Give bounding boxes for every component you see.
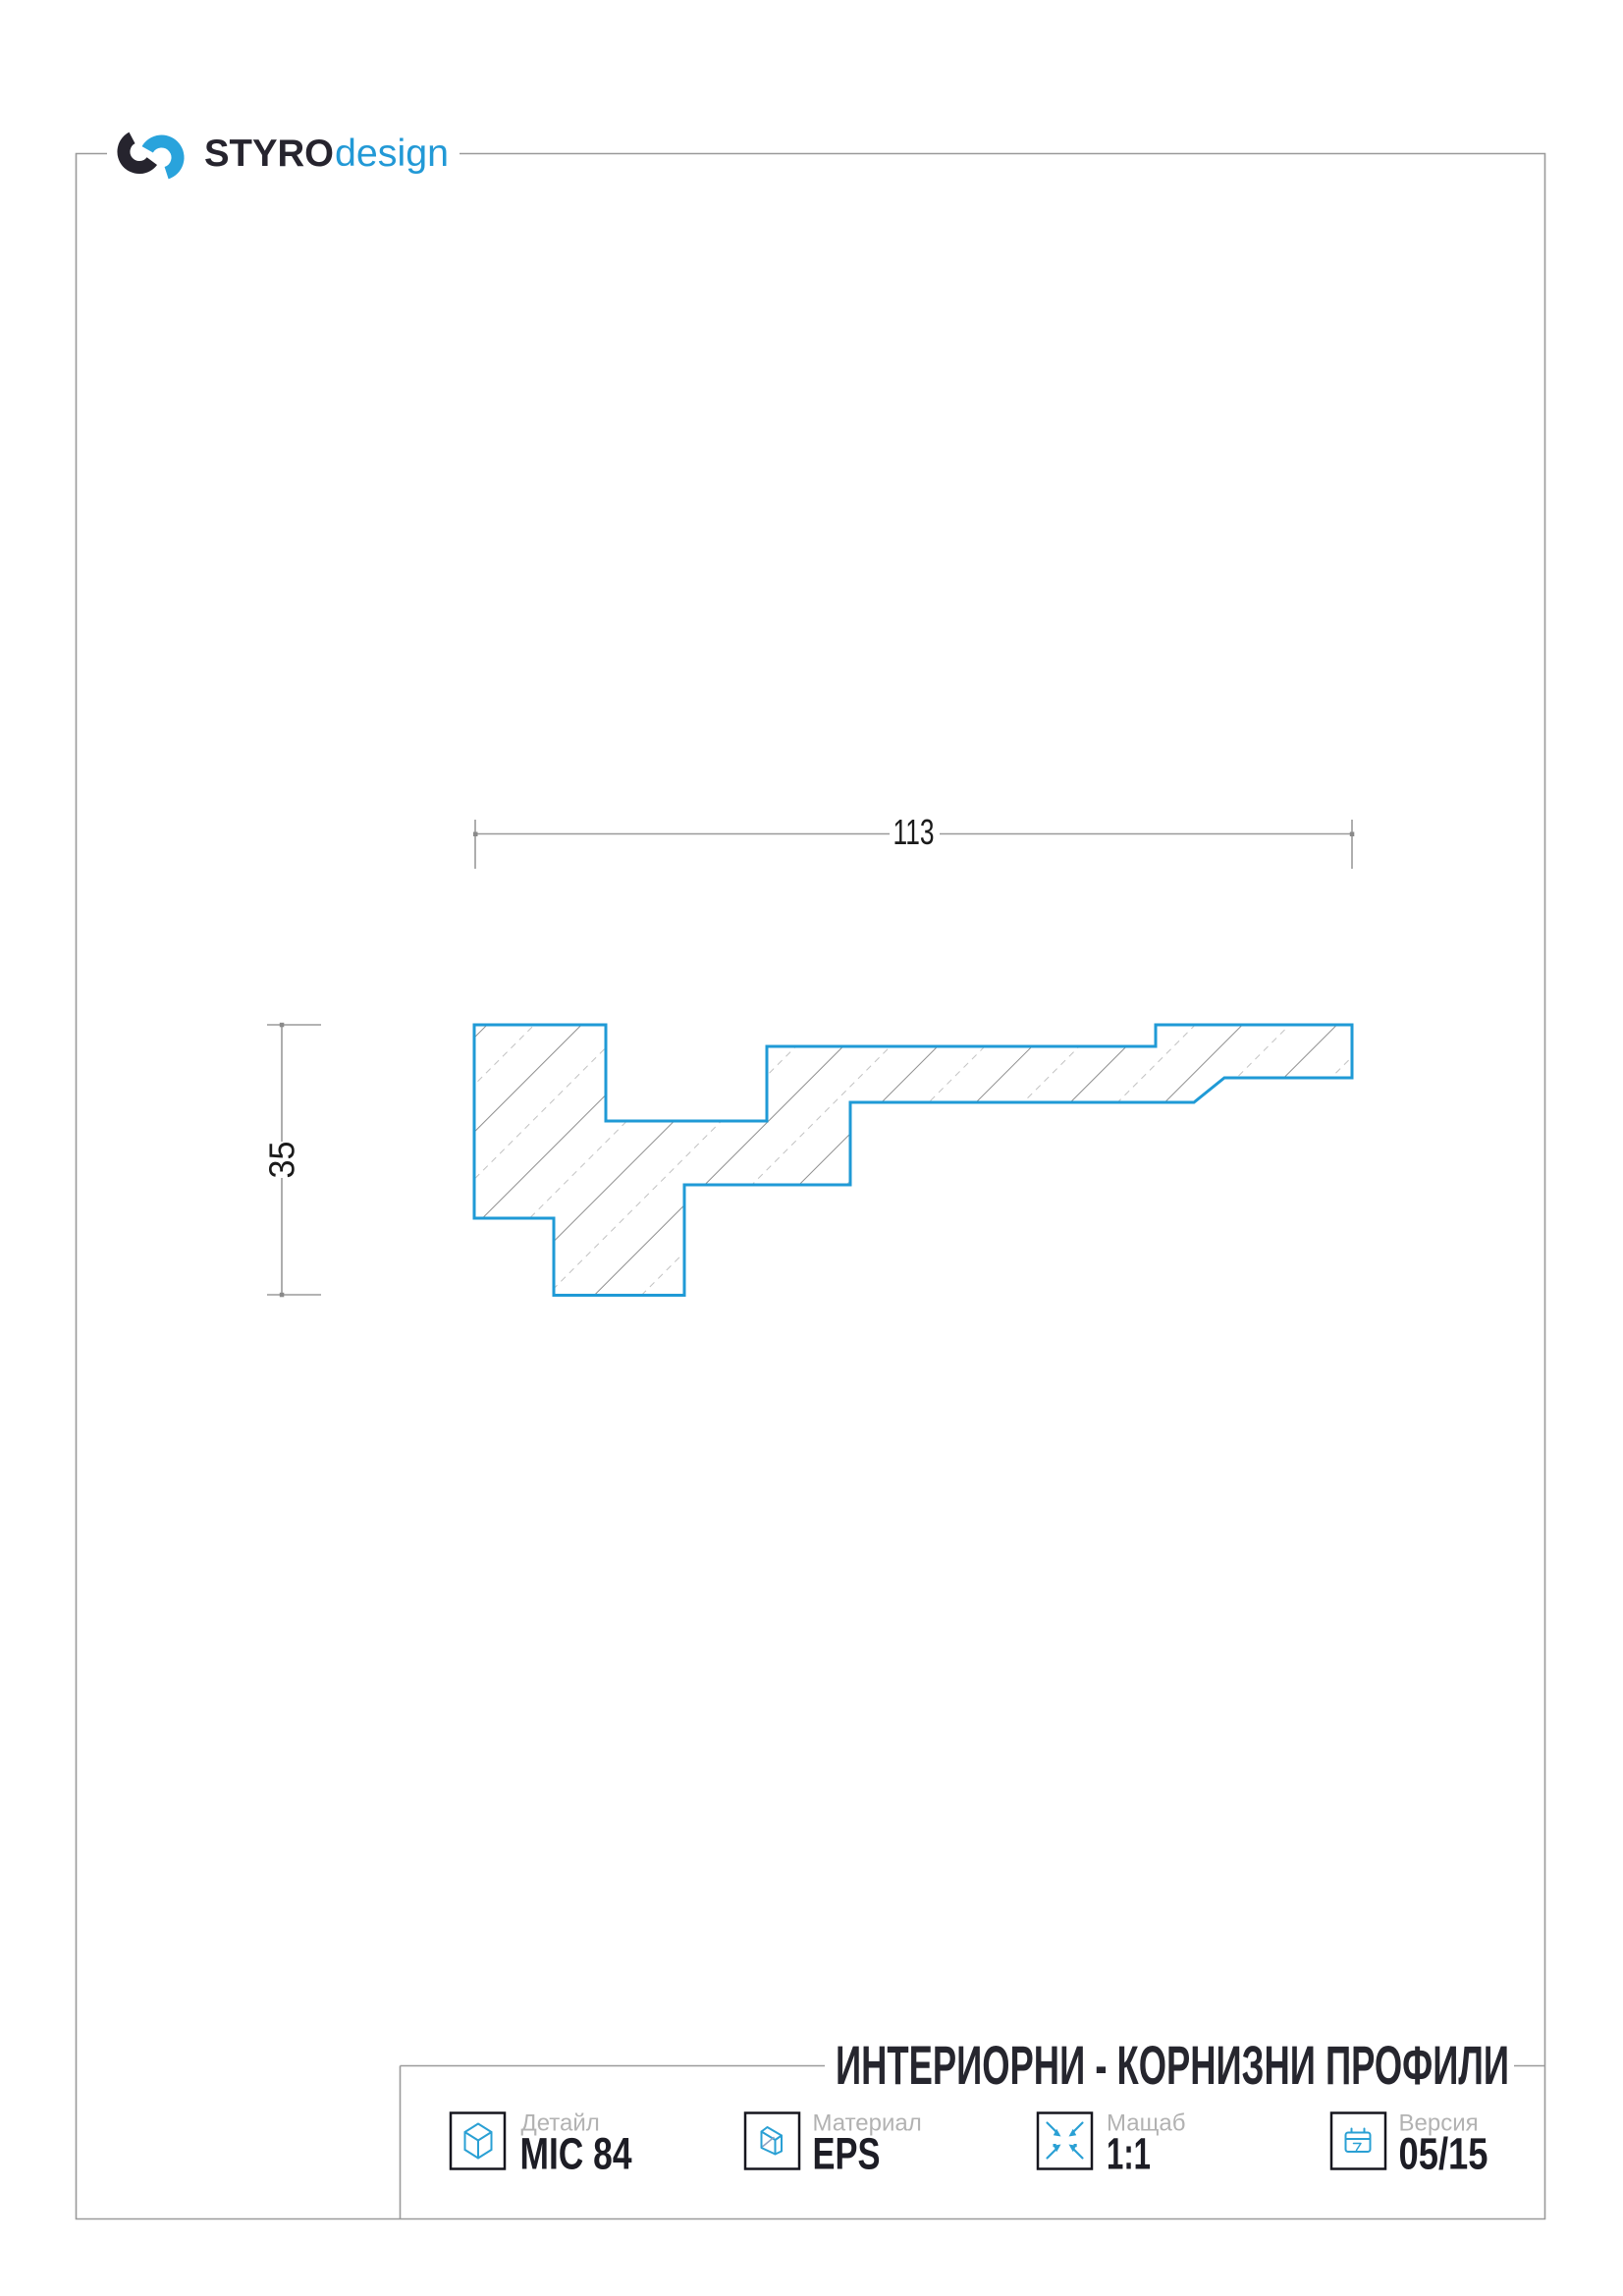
svg-text:MIC 84: MIC 84 (520, 2129, 632, 2179)
svg-text:ИНТЕРИОРНИ - КОРНИЗНИ ПРОФИЛИ: ИНТЕРИОРНИ - КОРНИЗНИ ПРОФИЛИ (836, 2034, 1509, 2096)
svg-text:EPS: EPS (813, 2129, 881, 2179)
svg-text:05/15: 05/15 (1399, 2129, 1488, 2179)
svg-text:design: design (335, 133, 449, 175)
svg-text:113: 113 (893, 812, 935, 852)
svg-text:1:1: 1:1 (1107, 2129, 1151, 2179)
svg-text:STYRO: STYRO (204, 133, 334, 175)
svg-text:35: 35 (262, 1142, 302, 1179)
